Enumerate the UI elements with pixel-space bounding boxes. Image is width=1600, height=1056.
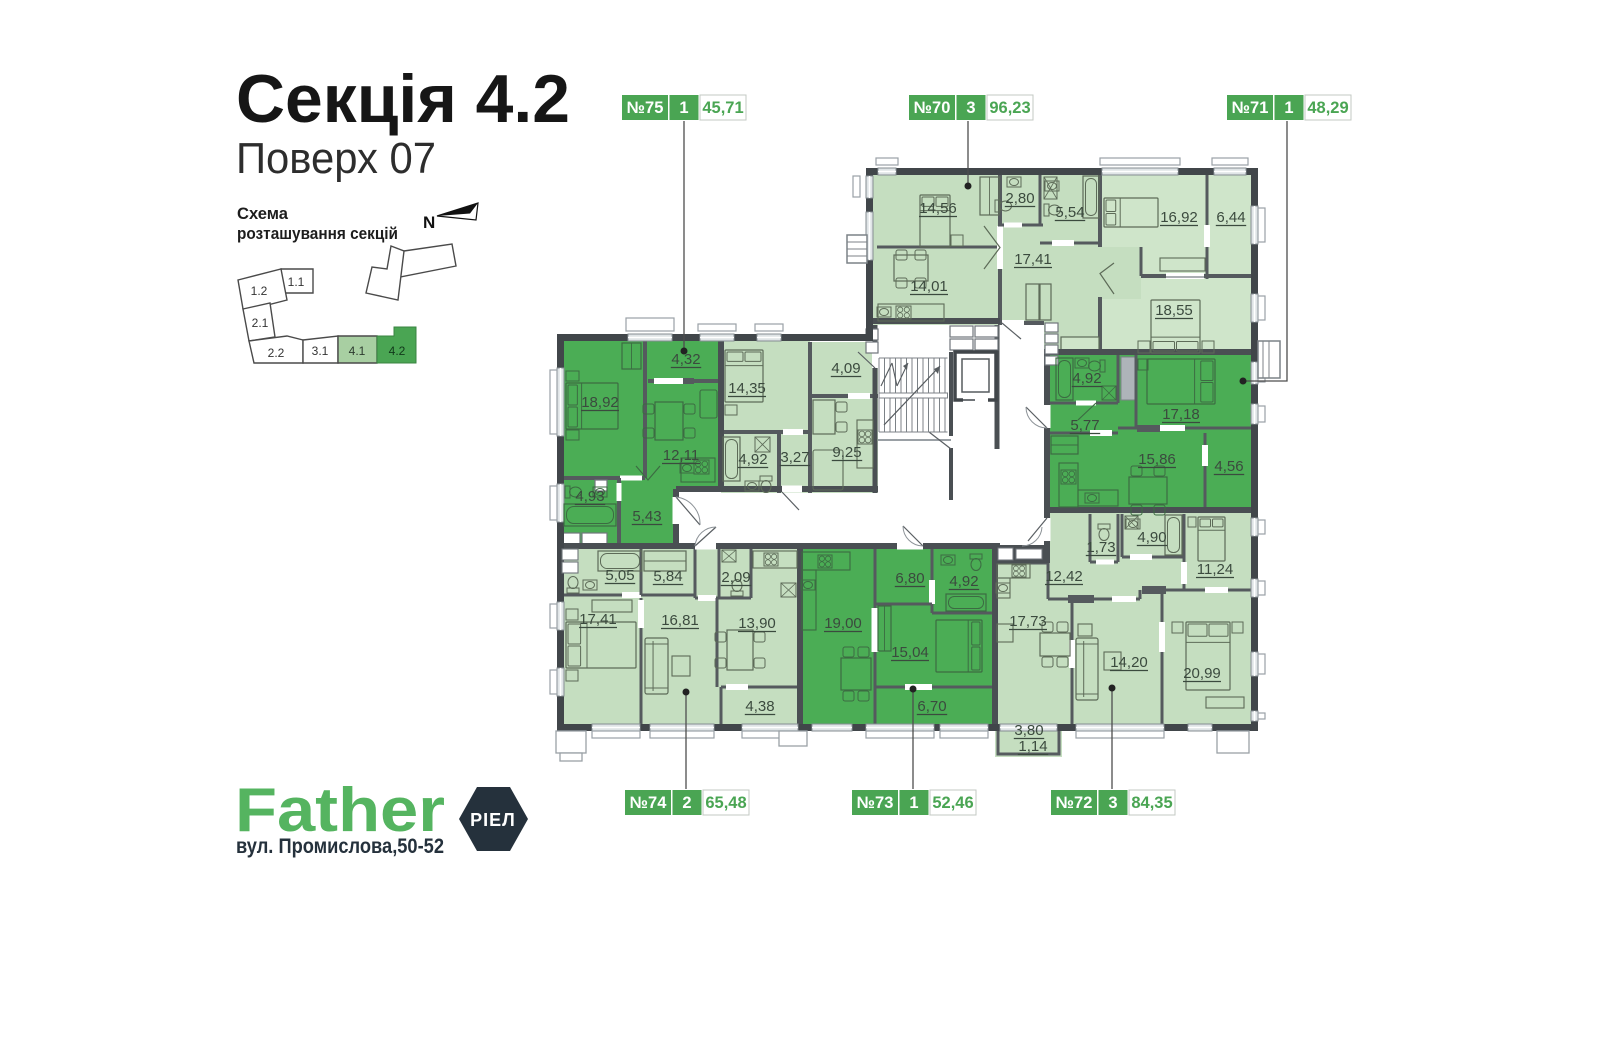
svg-text:4,92: 4,92: [949, 573, 978, 590]
svg-text:84,35: 84,35: [1131, 794, 1172, 812]
svg-text:2,80: 2,80: [1005, 190, 1034, 207]
svg-text:52,46: 52,46: [932, 794, 973, 812]
svg-text:5,77: 5,77: [1070, 417, 1099, 434]
svg-text:96,23: 96,23: [989, 99, 1030, 117]
svg-text:14,35: 14,35: [728, 380, 766, 397]
svg-text:1: 1: [679, 99, 688, 117]
svg-text:2,09: 2,09: [721, 569, 750, 586]
svg-text:17,41: 17,41: [579, 611, 617, 628]
svg-text:Поверх 07: Поверх 07: [236, 134, 436, 183]
svg-text:№70: №70: [914, 99, 951, 117]
svg-text:12,11: 12,11: [663, 447, 699, 464]
svg-text:3,27: 3,27: [780, 449, 809, 466]
svg-text:1,14: 1,14: [1018, 738, 1047, 755]
svg-text:1.1: 1.1: [288, 275, 305, 289]
svg-text:вул. Промислова,50-52: вул. Промислова,50-52: [236, 835, 444, 858]
svg-text:3: 3: [966, 99, 975, 117]
svg-text:3: 3: [1108, 794, 1117, 812]
svg-text:4,09: 4,09: [831, 360, 860, 377]
svg-text:20,99: 20,99: [1183, 665, 1221, 682]
svg-text:1,73: 1,73: [1086, 539, 1115, 556]
svg-text:17,41: 17,41: [1014, 251, 1052, 268]
svg-text:5,43: 5,43: [632, 508, 661, 525]
svg-text:4,56: 4,56: [1214, 458, 1243, 475]
svg-text:5,84: 5,84: [653, 568, 682, 585]
svg-text:65,48: 65,48: [705, 794, 746, 812]
svg-text:6,70: 6,70: [917, 698, 946, 715]
svg-text:48,29: 48,29: [1307, 99, 1348, 117]
svg-text:15,04: 15,04: [891, 644, 929, 661]
svg-text:4,90: 4,90: [1137, 529, 1166, 546]
svg-text:4.1: 4.1: [349, 344, 366, 358]
svg-text:3.1: 3.1: [312, 344, 329, 358]
svg-text:16,92: 16,92: [1160, 209, 1198, 226]
svg-text:14,20: 14,20: [1110, 654, 1148, 671]
svg-text:5,05: 5,05: [605, 567, 634, 584]
svg-text:12,42: 12,42: [1045, 568, 1083, 585]
svg-text:3,80: 3,80: [1014, 722, 1043, 739]
svg-text:19,00: 19,00: [824, 615, 862, 632]
svg-text:№72: №72: [1056, 794, 1093, 812]
svg-text:45,71: 45,71: [702, 99, 743, 117]
svg-text:2.2: 2.2: [268, 346, 285, 360]
svg-text:11,24: 11,24: [1197, 561, 1233, 578]
svg-text:РІЕЛ: РІЕЛ: [470, 810, 516, 830]
svg-text:4,92: 4,92: [738, 451, 767, 468]
svg-text:Схема: Схема: [237, 204, 289, 223]
svg-text:N: N: [423, 213, 435, 232]
svg-text:5,54: 5,54: [1055, 204, 1084, 221]
svg-text:№71: №71: [1232, 99, 1269, 117]
svg-text:4,92: 4,92: [1072, 370, 1101, 387]
svg-text:17,18: 17,18: [1162, 406, 1200, 423]
svg-text:4.2: 4.2: [389, 344, 406, 358]
svg-text:18,55: 18,55: [1155, 302, 1193, 319]
svg-text:№75: №75: [627, 99, 664, 117]
svg-text:4,38: 4,38: [745, 698, 774, 715]
svg-text:2: 2: [682, 794, 691, 812]
svg-text:9,25: 9,25: [832, 444, 861, 461]
svg-text:17,73: 17,73: [1009, 613, 1047, 630]
svg-text:Секція 4.2: Секція 4.2: [236, 61, 570, 137]
svg-text:14,01: 14,01: [910, 278, 948, 295]
svg-text:1: 1: [909, 794, 918, 812]
svg-text:№73: №73: [857, 794, 894, 812]
svg-text:1.2: 1.2: [251, 284, 268, 298]
svg-text:4,93: 4,93: [575, 488, 604, 505]
svg-text:13,90: 13,90: [738, 615, 776, 632]
svg-text:6,44: 6,44: [1216, 209, 1245, 226]
svg-text:1: 1: [1284, 99, 1293, 117]
svg-text:16,81: 16,81: [661, 612, 699, 629]
svg-text:15,86: 15,86: [1138, 451, 1176, 468]
svg-text:14,56: 14,56: [919, 200, 957, 217]
svg-text:6,80: 6,80: [895, 570, 924, 587]
svg-text:№74: №74: [630, 794, 668, 812]
svg-text:розташування секцій: розташування секцій: [237, 224, 398, 243]
svg-text:2.1: 2.1: [252, 316, 269, 330]
svg-text:18,92: 18,92: [581, 394, 619, 411]
